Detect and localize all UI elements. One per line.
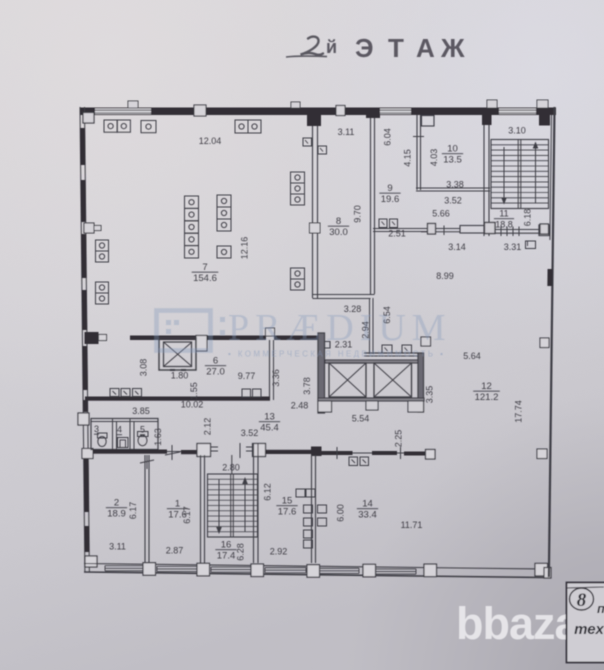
svg-text:4.03: 4.03 [429,149,439,167]
svg-text:3.52: 3.52 [444,196,462,206]
svg-text:45.4: 45.4 [260,423,279,434]
svg-text:11: 11 [499,209,508,219]
svg-text:Ж: Ж [440,33,465,63]
svg-text:12: 12 [481,381,492,392]
svg-text:33.4: 33.4 [358,510,377,521]
svg-text:6.17: 6.17 [128,502,138,520]
svg-text:3.14: 3.14 [448,242,466,252]
svg-text:3.11: 3.11 [338,127,355,137]
svg-text:5.54: 5.54 [352,414,370,424]
svg-text:5: 5 [140,425,145,435]
svg-text:тех: тех [574,621,604,638]
svg-text:10: 10 [447,144,458,155]
svg-text:9.70: 9.70 [353,205,363,223]
svg-text:й: й [326,37,337,57]
svg-text:14: 14 [362,499,373,510]
svg-text:8: 8 [336,216,341,227]
svg-text:2.25: 2.25 [394,430,404,448]
svg-text:17.6: 17.6 [168,510,187,521]
svg-text:27.0: 27.0 [206,367,225,378]
svg-text:8: 8 [577,590,587,611]
svg-text:4: 4 [117,425,122,435]
svg-text:3: 3 [94,424,99,434]
svg-text:2.51: 2.51 [388,229,406,239]
svg-text:13: 13 [264,412,275,423]
svg-text:3.31: 3.31 [504,242,522,252]
svg-text:6: 6 [213,356,218,367]
svg-text:3.11: 3.11 [109,542,126,552]
svg-text:6.28: 6.28 [236,543,246,561]
svg-text:1.55: 1.55 [189,382,199,400]
svg-text:3.36: 3.36 [271,369,281,387]
svg-text:п: п [597,601,604,616]
svg-text:4.15: 4.15 [403,149,413,167]
svg-text:9: 9 [387,183,392,194]
svg-text:3.85: 3.85 [132,406,150,416]
svg-text:3.08: 3.08 [139,359,149,377]
svg-text:2: 2 [114,498,119,509]
svg-text:2.80: 2.80 [222,463,240,473]
svg-text:2.48: 2.48 [291,401,309,411]
svg-text:▪ КОММЕРЧЕСКАЯ НЕДВИЖИМОСТЬ ▪: ▪ КОММЕРЧЕСКАЯ НЕДВИЖИМОСТЬ ▪ [228,350,445,359]
svg-text:16: 16 [221,540,232,551]
svg-text:30.0: 30.0 [329,227,348,238]
svg-text:2.92: 2.92 [270,547,288,557]
svg-text:6.54: 6.54 [382,306,392,324]
svg-text:7: 7 [202,262,207,273]
svg-text:3.52: 3.52 [241,428,259,438]
svg-text:1: 1 [175,499,180,510]
svg-text:1.63: 1.63 [153,428,163,446]
svg-text:2.12: 2.12 [203,418,213,436]
svg-text:6.00: 6.00 [336,504,346,522]
svg-text:18.8: 18.8 [495,220,513,230]
svg-text:17.6: 17.6 [278,507,297,518]
svg-text:8.99: 8.99 [436,271,454,281]
svg-text:5.64: 5.64 [463,351,481,361]
svg-text:6.12: 6.12 [263,483,273,501]
svg-text:1.80: 1.80 [171,371,189,381]
svg-text:9.77: 9.77 [238,371,256,381]
svg-text:2.31: 2.31 [335,340,353,350]
svg-text:5.66: 5.66 [432,209,450,219]
svg-text:3.28: 3.28 [344,304,362,314]
svg-text:А: А [416,33,435,63]
svg-text:3.38: 3.38 [446,180,464,190]
svg-text:17.4: 17.4 [217,551,236,562]
svg-text:3.78: 3.78 [302,377,312,395]
svg-text:bbaza: bbaza [456,598,581,649]
svg-text:10.02: 10.02 [181,400,204,410]
svg-text:6.18: 6.18 [523,209,533,227]
svg-text:12.16: 12.16 [240,237,250,260]
svg-text:12.04: 12.04 [199,136,222,146]
svg-text:18.9: 18.9 [107,509,126,520]
svg-text:Т: Т [388,33,404,63]
svg-text:19.6: 19.6 [381,194,400,205]
svg-text:121.2: 121.2 [475,392,499,403]
svg-text:15: 15 [282,496,293,507]
svg-text:2.94: 2.94 [361,321,371,339]
svg-text:3.10: 3.10 [508,126,526,136]
svg-text:3.35: 3.35 [425,386,435,404]
svg-text:154.6: 154.6 [193,273,217,284]
svg-text:Э: Э [355,33,374,63]
svg-text:17.74: 17.74 [514,400,524,423]
svg-text:6.04: 6.04 [383,128,393,146]
svg-text:2.87: 2.87 [166,546,184,556]
svg-text:13.5: 13.5 [443,155,462,166]
svg-text:11.71: 11.71 [401,520,423,530]
